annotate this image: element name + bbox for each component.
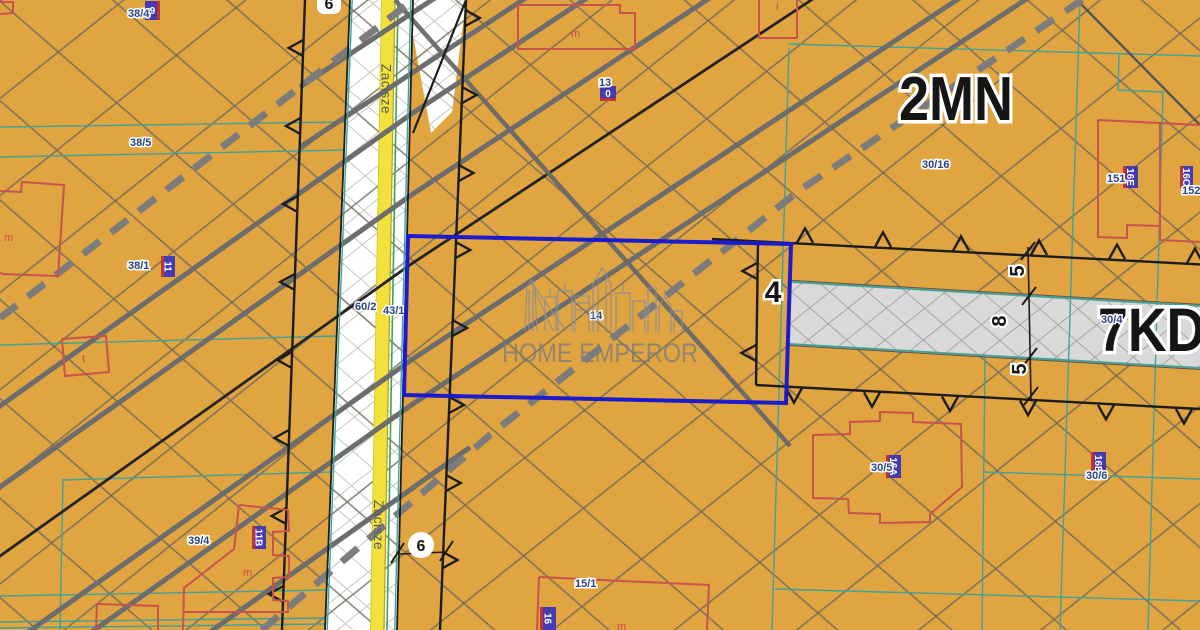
svg-text:16C: 16C (1180, 168, 1191, 186)
svg-text:13: 13 (599, 77, 611, 89)
svg-text:38/4: 38/4 (128, 8, 150, 20)
svg-text:30/4: 30/4 (1101, 314, 1123, 326)
svg-text:5: 5 (1009, 363, 1031, 374)
svg-text:m: m (571, 28, 580, 40)
svg-text:8: 8 (989, 315, 1011, 326)
svg-text:4: 4 (765, 276, 782, 309)
svg-text:43/1: 43/1 (383, 305, 404, 317)
svg-text:30/5: 30/5 (871, 462, 892, 474)
svg-text:152: 152 (1182, 185, 1200, 197)
svg-text:i: i (776, 1, 778, 13)
svg-text:m: m (4, 232, 13, 244)
svg-text:151: 151 (1107, 173, 1125, 185)
svg-text:16: 16 (542, 613, 553, 625)
svg-text:m: m (243, 567, 252, 579)
svg-text:60/2: 60/2 (355, 301, 376, 313)
svg-text:7KDL: 7KDL (1098, 296, 1200, 364)
svg-text:2MN: 2MN (899, 65, 1013, 134)
svg-text:6: 6 (417, 538, 426, 555)
svg-text:m: m (617, 621, 626, 630)
svg-text:t: t (82, 353, 85, 365)
svg-text:11: 11 (162, 261, 173, 272)
svg-text:30/6: 30/6 (1086, 470, 1107, 482)
svg-text:14: 14 (590, 310, 603, 322)
svg-text:39/4: 39/4 (188, 535, 210, 547)
svg-text:9: 9 (150, 6, 156, 17)
svg-text:6: 6 (325, 0, 334, 13)
svg-text:11B: 11B (253, 529, 264, 547)
svg-text:0: 0 (605, 89, 611, 100)
svg-text:30/16: 30/16 (922, 159, 950, 171)
svg-text:15/1: 15/1 (575, 578, 596, 590)
svg-text:38/5: 38/5 (130, 137, 151, 149)
svg-text:HOME EMPEROR: HOME EMPEROR (502, 338, 698, 368)
svg-text:38/1: 38/1 (128, 260, 149, 272)
svg-text:Zacisze: Zacisze (379, 64, 394, 114)
svg-text:16E: 16E (1124, 168, 1135, 186)
svg-text:Zacisze: Zacisze (371, 500, 386, 550)
svg-text:5: 5 (1007, 265, 1029, 276)
